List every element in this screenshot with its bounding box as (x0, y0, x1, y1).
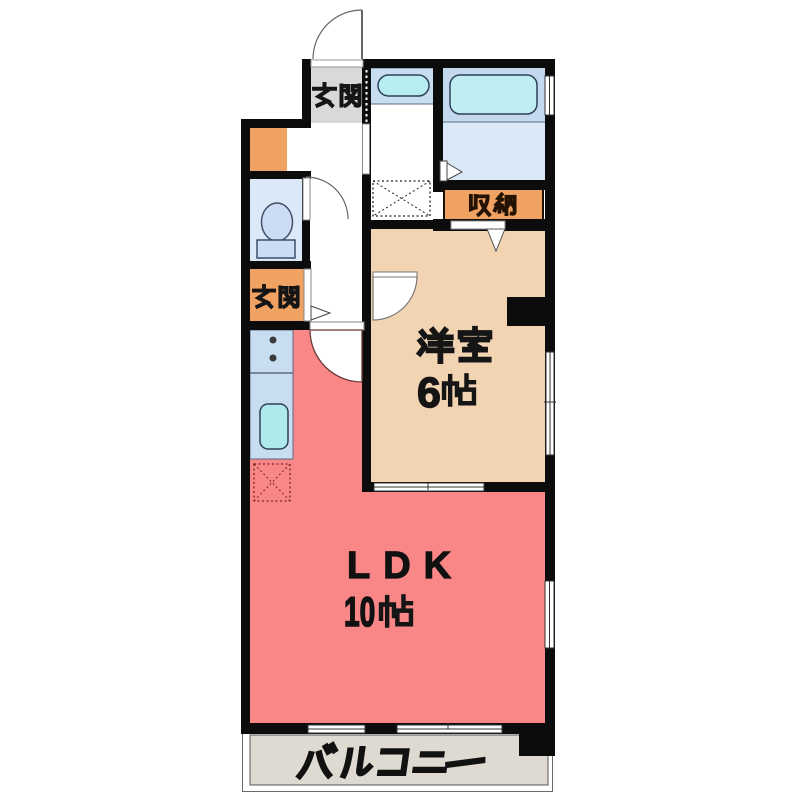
svg-text:10: 10 (344, 588, 375, 635)
svg-text:6: 6 (417, 369, 441, 417)
svg-text:LDK: LDK (347, 545, 464, 587)
